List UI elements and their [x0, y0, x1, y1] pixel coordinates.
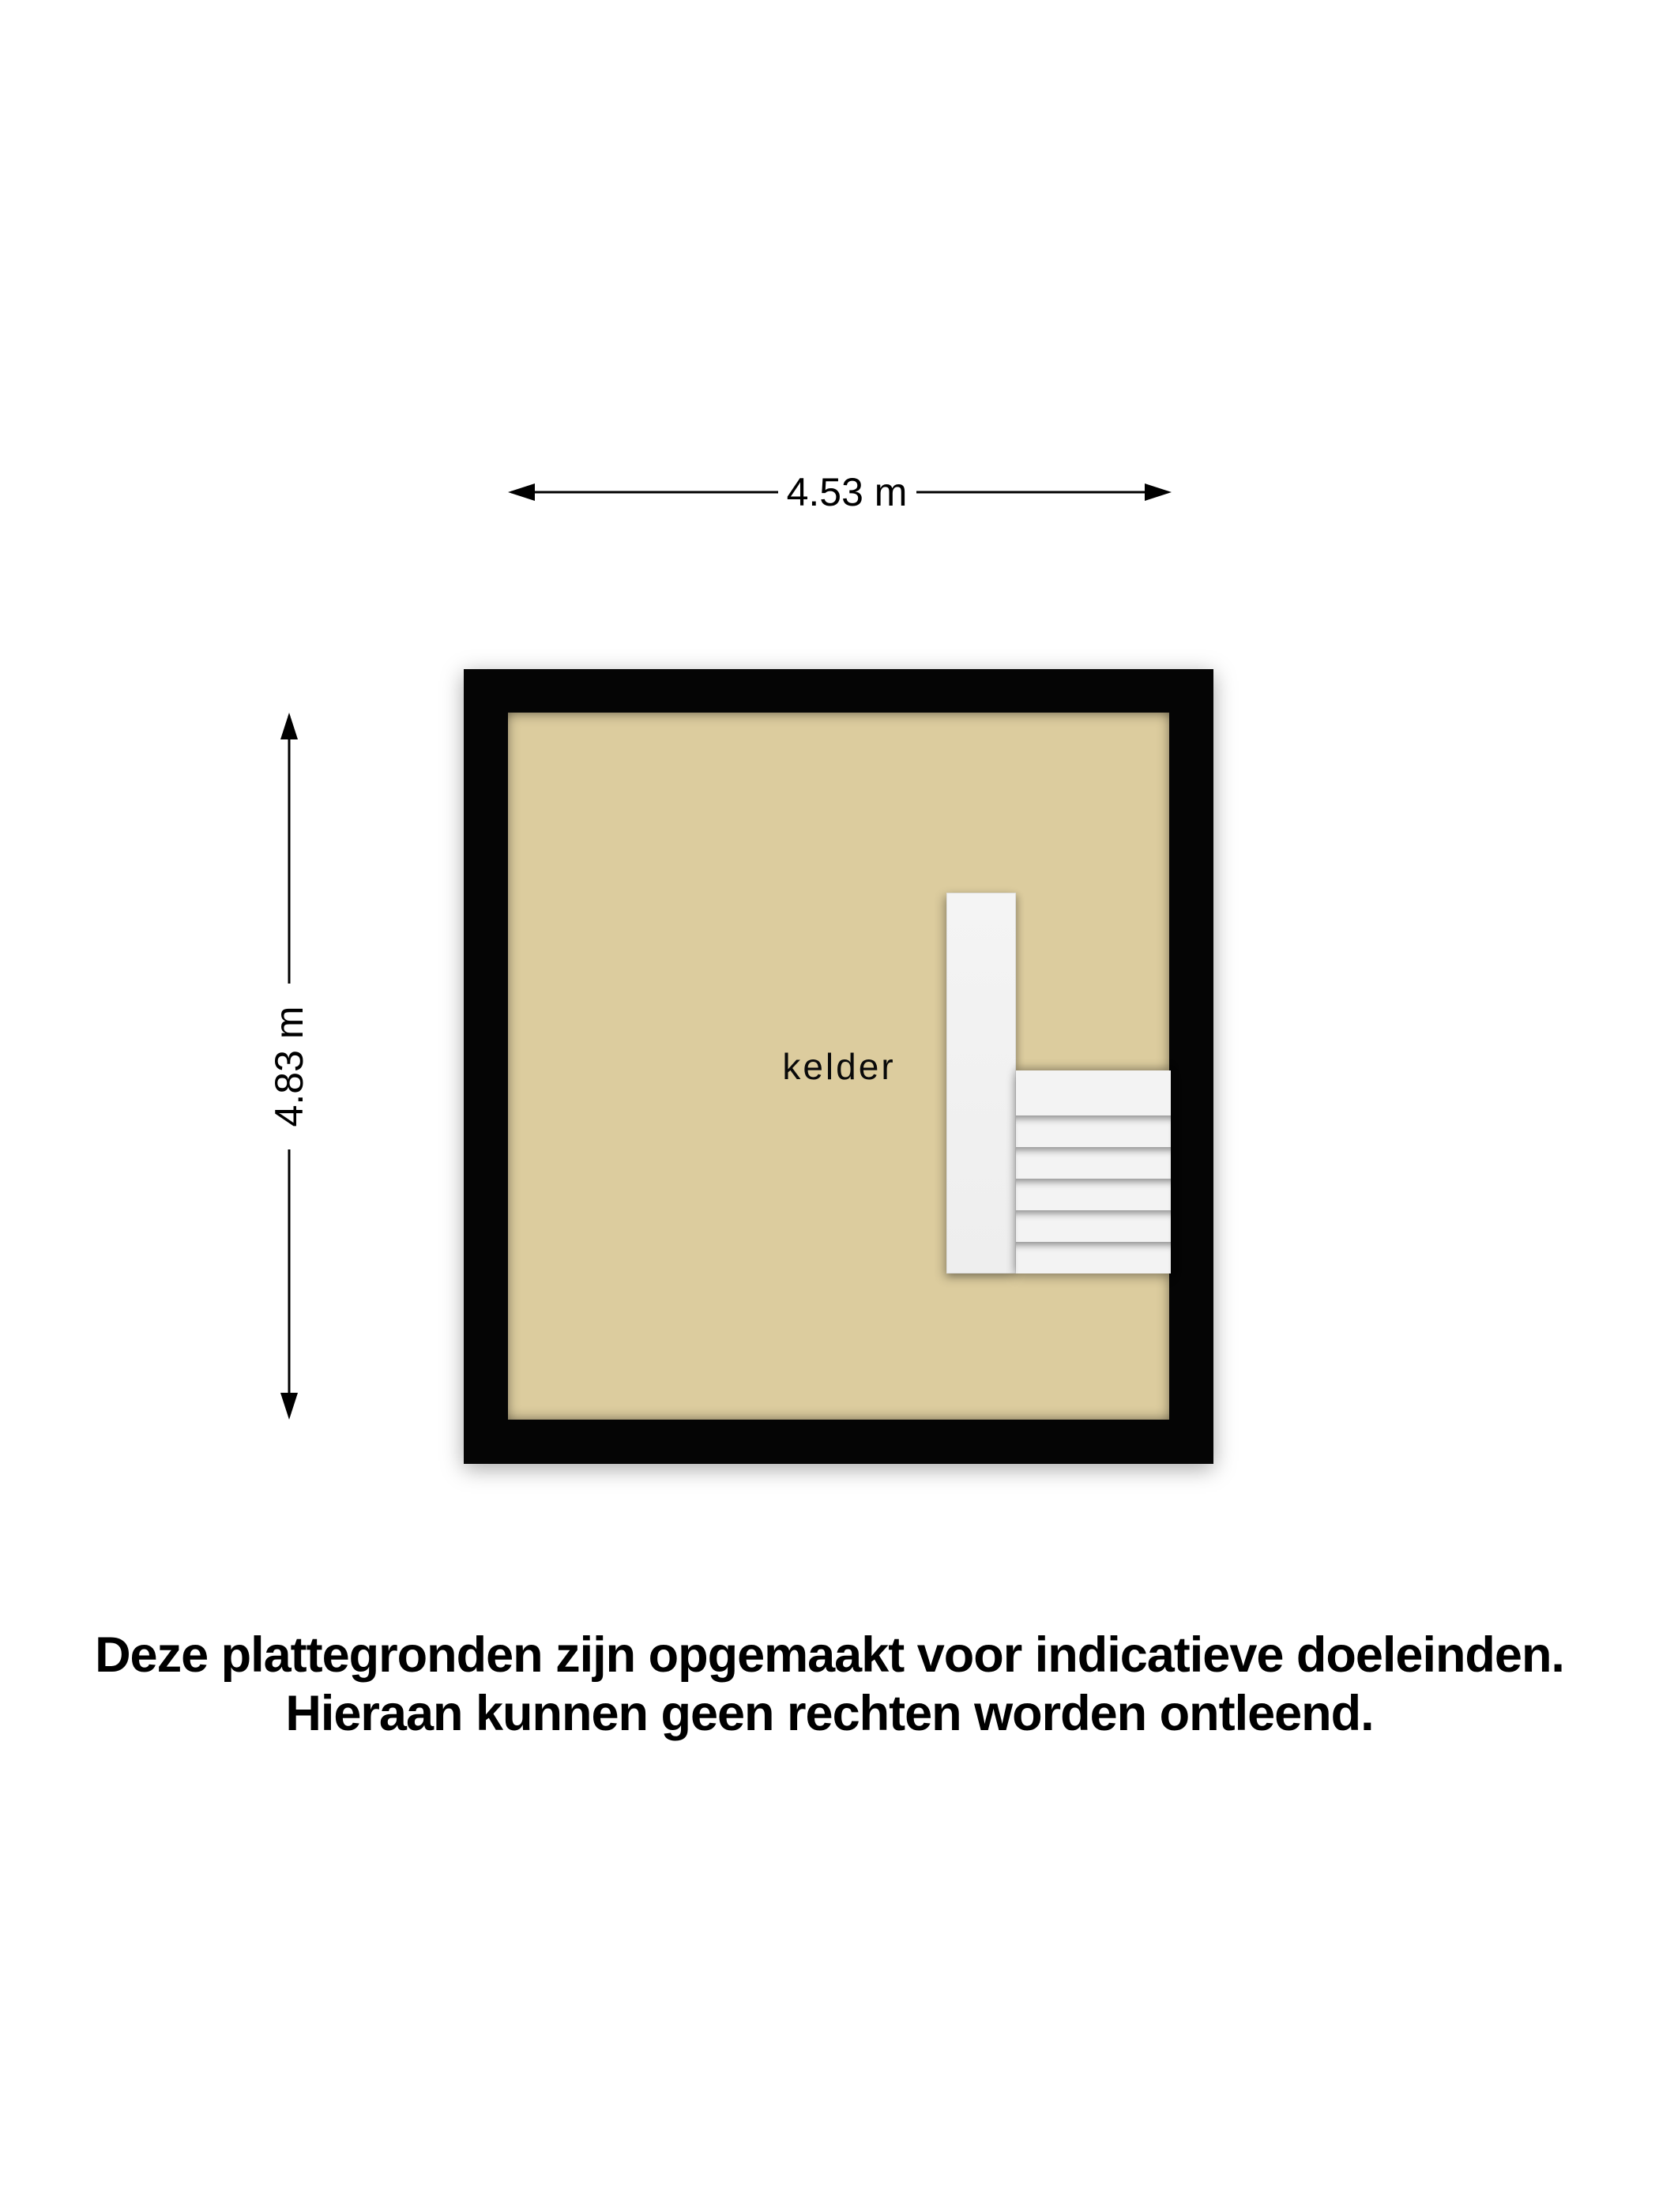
stair-treads — [1016, 1070, 1171, 1273]
arrowhead-down-icon — [280, 1393, 298, 1420]
height-dimension-label: 4.83 m — [265, 980, 313, 1153]
arrowhead-left-icon — [508, 483, 535, 501]
arrowhead-right-icon — [1145, 483, 1172, 501]
stair-tread — [1016, 1210, 1171, 1242]
width-dimension-label: 4.53 m — [768, 468, 926, 516]
stair-stringer — [946, 893, 1016, 1273]
arrowhead-up-icon — [280, 713, 298, 739]
stair-tread — [1016, 1179, 1171, 1210]
disclaimer-line-2: Hieraan kunnen geen rechten worden ontle… — [0, 1684, 1659, 1743]
stair-tread — [1016, 1070, 1171, 1115]
floorplan-canvas: 4.53 m 4.83 m kelder Deze plattegronden … — [0, 0, 1659, 2212]
stair-tread — [1016, 1115, 1171, 1147]
stair-tread — [1016, 1147, 1171, 1179]
stair-tread — [1016, 1242, 1171, 1273]
room-label: kelder — [720, 1044, 957, 1089]
disclaimer: Deze plattegronden zijn opgemaakt voor i… — [0, 1626, 1659, 1743]
disclaimer-line-1: Deze plattegronden zijn opgemaakt voor i… — [0, 1626, 1659, 1684]
